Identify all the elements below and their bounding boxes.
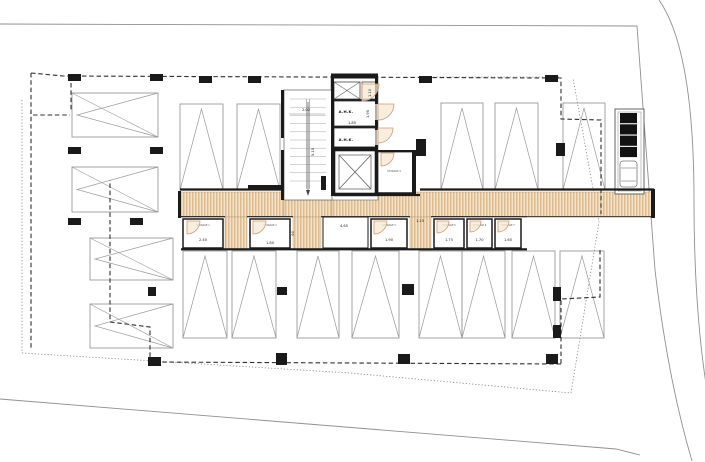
parking-stall [419,251,462,338]
floor-plan: STORAGE 12.40STORAGE 21.80.90STORAGE 31.… [0,0,705,462]
ahk-room-2-label: A.H.K. [339,137,354,142]
column-marker [148,357,161,366]
wall-block [416,139,426,156]
car-lift [615,109,644,194]
open-bay [323,217,368,248]
column-marker [553,325,561,338]
boundary-line [659,0,705,461]
car-lift-ramp-hatch [620,113,637,123]
wall-block [375,145,378,195]
column-marker [277,287,287,295]
column-marker [545,75,558,82]
parking-stall [462,251,505,338]
column-marker [276,353,287,365]
storage-dim: 1.80 [266,241,275,245]
parking-stall-marking [95,304,173,348]
ahk-room-1-label: A.H.K. [339,109,354,114]
corridor-hatch-area [284,200,332,217]
parking-stall-marking [441,108,483,190]
storage-4-label: STORAGE 4 [387,170,401,173]
parking-stall [512,251,555,338]
storage-dim: 2.40 [199,238,208,242]
parking-stall-marking [180,109,223,190]
door-arc [378,104,394,120]
column-marker [148,287,156,296]
storage-dim: 1.75 [445,238,453,242]
storage-side-dim: .90 [291,230,295,236]
wall-block [321,176,326,190]
column-marker [199,76,212,83]
wall-block [331,76,334,196]
wall-block [651,189,655,218]
parking-stall-marking [297,256,339,338]
parking-stall [180,104,223,190]
parking-stall [232,251,276,338]
parking-stall-marking [95,238,173,280]
boundary-line [0,24,637,26]
wall-block [556,143,565,156]
dim-bay-width: 4.65 [340,224,348,228]
column-marker [68,218,81,225]
column-marker [553,287,561,301]
parking-stall [560,251,604,338]
floor-plan-drawing: STORAGE 12.40STORAGE 21.80.90STORAGE 31.… [0,0,705,462]
plot-dotted-line [571,78,599,393]
plot-dotted-line [22,353,571,393]
wall-block [281,90,284,138]
parking-stall [352,251,399,338]
parking-stall [563,103,605,190]
column-marker [130,218,143,225]
dim-ahk-width: 1.85 [348,121,356,125]
parking-stall-marking [419,256,462,338]
storage-dim: 1.60 [504,238,513,242]
corridor-hatch-area [293,217,321,250]
wall-block [248,185,284,190]
column-marker [398,354,410,364]
dim-duct: 1.10 [368,88,372,97]
parking-stall-marking [512,256,555,338]
parking-stall-marking [237,109,280,190]
parking-stall [495,103,538,190]
parking-stall-marking [72,93,158,137]
column-marker [150,74,163,81]
dim-passage: 1.25 [416,219,424,223]
parking-stall-marking [90,238,173,280]
storage-dim: 1.90 [385,238,394,242]
car-lift-ramp-hatch [620,147,637,157]
dim-ahk-depth: 1.95 [366,110,370,118]
parking-stall [441,103,483,190]
parking-stall-marking [72,167,158,212]
dim-stair-run: 5.15 [311,148,315,156]
parking-stall-marking [77,93,158,137]
column-marker [68,74,81,81]
column-marker [68,147,81,154]
wall-block [412,150,416,194]
dim-stair-width: 2.02 [302,108,310,112]
wall-block [281,150,284,200]
parking-stall-marking [183,256,227,338]
corridor-hatch-area [225,217,247,250]
storage-dim: 1.70 [475,238,484,242]
car-lift-ramp-hatch [620,124,637,134]
building-outline-line [561,250,600,364]
parking-stall [237,104,280,190]
parking-stall-marking [495,108,538,190]
column-marker [546,354,558,364]
wall-block [178,191,181,218]
parking-stall-marking [462,256,505,338]
boundary-line [637,26,692,461]
parking-stall-marking [77,167,158,212]
building-outline-line [31,73,550,78]
corridor-hatch-area [181,192,284,217]
column-marker [402,284,414,295]
car-lift-ramp-hatch [620,136,637,146]
parking-stall-marking [232,256,276,338]
parking-stall [297,251,339,338]
boundary-line [0,399,640,455]
column-marker [419,76,432,83]
parking-stall-marking [90,304,173,348]
column-marker [150,147,163,154]
wall-block [375,120,378,130]
column-marker [248,76,261,83]
door-arc [378,128,393,143]
parking-stall-marking [352,256,399,338]
parking-stall [183,251,227,338]
